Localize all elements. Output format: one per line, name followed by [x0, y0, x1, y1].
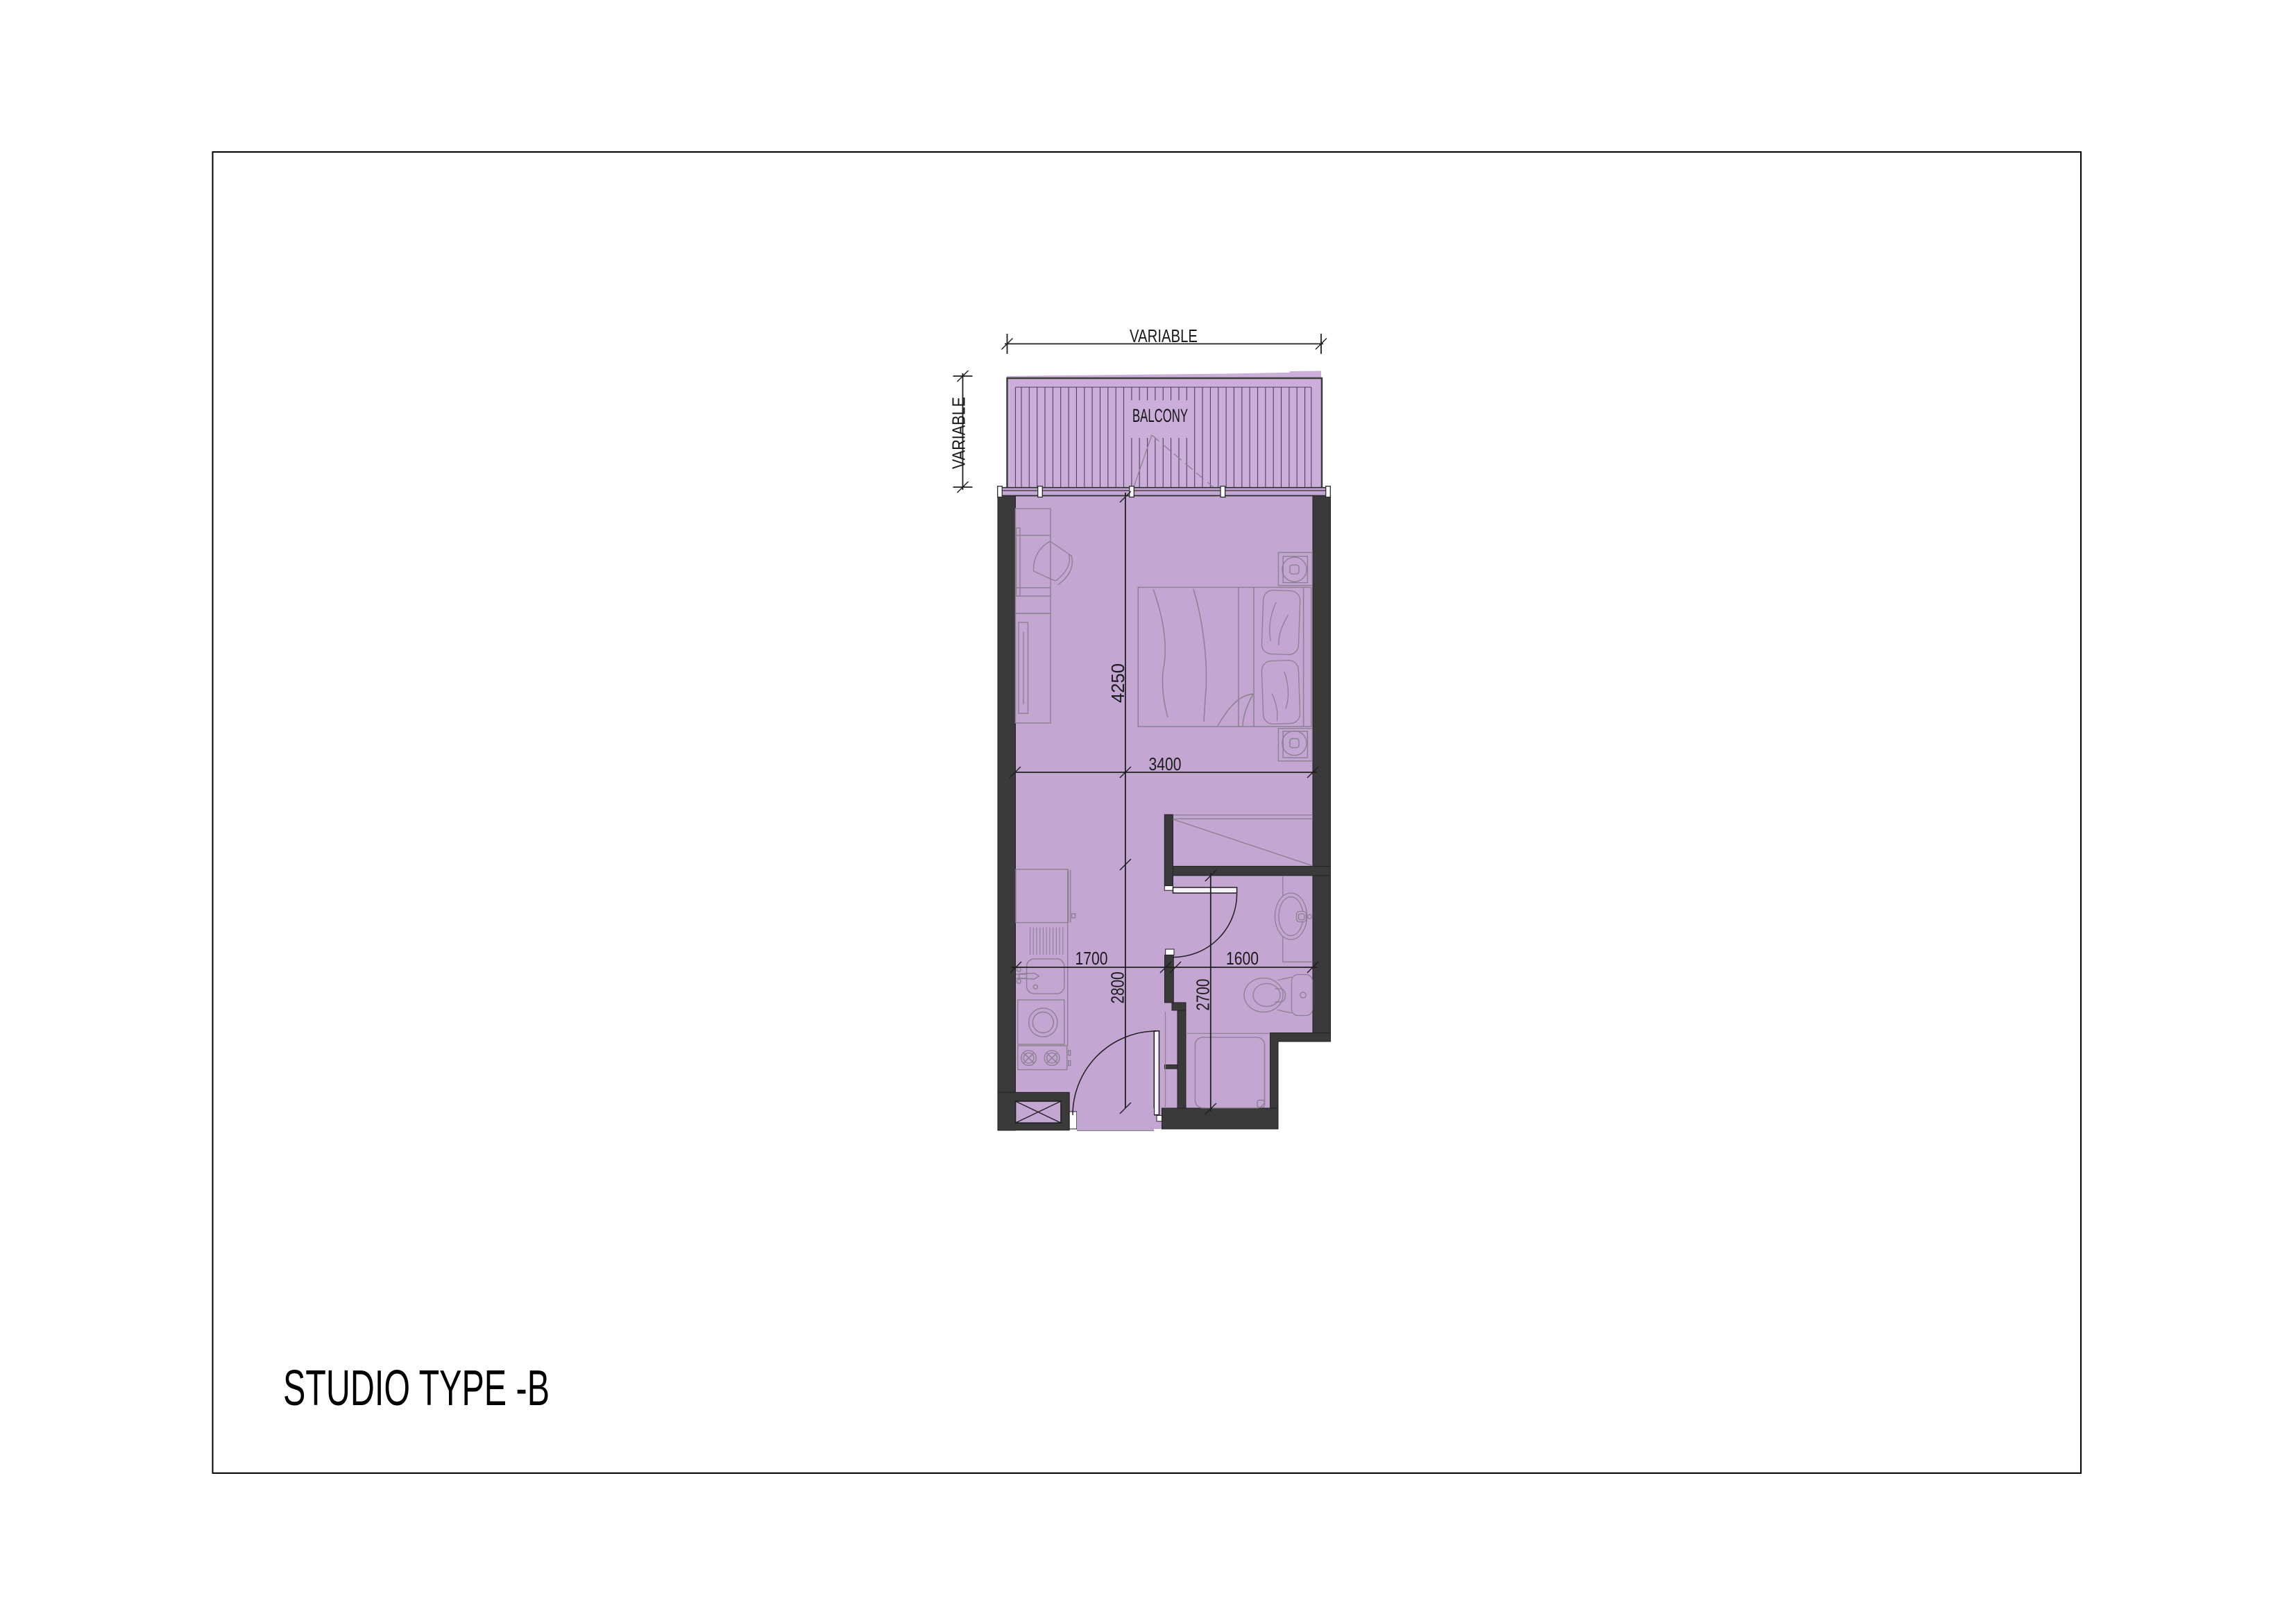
svg-text:STUDIO TYPE -B: STUDIO TYPE -B — [283, 1361, 550, 1416]
svg-text:VARIABLE: VARIABLE — [1130, 325, 1198, 346]
svg-text:VARIABLE: VARIABLE — [949, 397, 969, 469]
svg-text:4250: 4250 — [1107, 663, 1128, 703]
svg-text:BALCONY: BALCONY — [1132, 405, 1188, 426]
svg-text:1700: 1700 — [1075, 948, 1108, 969]
svg-text:2700: 2700 — [1193, 979, 1214, 1011]
svg-text:1600: 1600 — [1226, 948, 1259, 969]
svg-text:2800: 2800 — [1107, 971, 1128, 1003]
svg-text:3400: 3400 — [1149, 754, 1182, 774]
